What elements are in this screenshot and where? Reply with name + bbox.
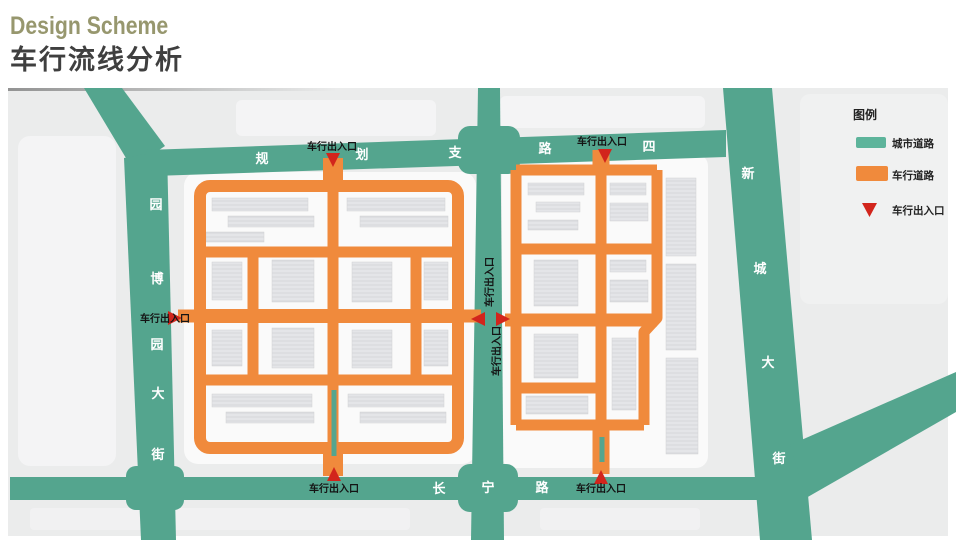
legend-city-road-swatch (856, 137, 886, 148)
legend-item-label: 车行出入口 (892, 204, 945, 217)
road-name-char: 划 (355, 147, 368, 162)
building (610, 183, 646, 195)
legend-item-label: 城市道路 (892, 137, 934, 150)
ground-panel (800, 94, 948, 304)
road-name-char: 园 (149, 197, 162, 212)
building (528, 220, 578, 230)
building (212, 262, 242, 300)
building (360, 216, 448, 227)
building (528, 183, 584, 195)
road-name-char: 博 (150, 271, 163, 286)
ground-panel (236, 100, 436, 136)
building (212, 330, 242, 366)
ground-panel (500, 96, 705, 128)
entrance-label: 车行出入口 (309, 482, 359, 495)
road-name-char: 规 (255, 151, 268, 166)
building (352, 262, 392, 302)
road-name-char: 四 (642, 139, 655, 154)
building (347, 198, 445, 211)
road-name-char: 园 (150, 337, 163, 352)
building (228, 216, 314, 227)
building (272, 260, 314, 302)
legend-vehicle-road-swatch (856, 166, 888, 181)
entrance-label: 车行出入口 (307, 140, 357, 153)
road-name-char: 大 (151, 386, 164, 401)
page-title-cn: 车行流线分析 (10, 45, 196, 76)
building (666, 178, 696, 256)
road-name-char: 新 (741, 166, 754, 181)
building (226, 412, 314, 423)
intersection-bulge (126, 466, 184, 510)
building (352, 330, 392, 368)
building (610, 203, 648, 221)
road-name-char: 大 (761, 355, 774, 370)
entrance-label-vertical: 车行出入口 (483, 257, 496, 307)
road-name-char: 路 (538, 141, 552, 156)
building (348, 394, 444, 407)
legend-title: 图例 (853, 107, 877, 122)
site-plan-map: 规 划 支 路 四 园 博 园 大 街 新 城 大 街 长 宁 路 车行出入口 … (0, 0, 956, 540)
building (272, 328, 314, 368)
entrance-label: 车行出入口 (140, 312, 190, 325)
road-name-char: 路 (535, 480, 549, 495)
slide-header: Design Scheme 车行流线分析 (10, 14, 196, 76)
page-title-en: Design Scheme (10, 14, 168, 39)
building (212, 198, 308, 211)
building (424, 262, 448, 300)
road-name-char: 支 (447, 145, 462, 160)
building (360, 412, 446, 423)
building (536, 202, 580, 212)
intersection-bulge (458, 126, 520, 174)
building (212, 394, 312, 407)
building (610, 260, 646, 272)
building (526, 396, 588, 414)
ground-panel (540, 508, 700, 530)
road-name-char: 城 (753, 261, 766, 276)
building (206, 232, 264, 242)
road-name-char: 街 (771, 451, 785, 466)
building (666, 358, 698, 454)
entrance-label-vertical: 车行出入口 (490, 326, 503, 376)
entrance-label: 车行出入口 (577, 135, 627, 148)
building (534, 334, 578, 378)
building (610, 280, 648, 302)
road-name-char: 街 (150, 447, 164, 462)
ground-panel (18, 136, 116, 466)
building (534, 260, 578, 306)
road-name-char: 长 (432, 481, 446, 496)
road-name-char: 宁 (481, 480, 494, 495)
ground-panel (30, 508, 410, 530)
building (424, 330, 448, 366)
building (666, 264, 696, 350)
legend-item-label: 车行道路 (892, 169, 934, 182)
building (612, 338, 636, 410)
entrance-label: 车行出入口 (576, 482, 626, 495)
